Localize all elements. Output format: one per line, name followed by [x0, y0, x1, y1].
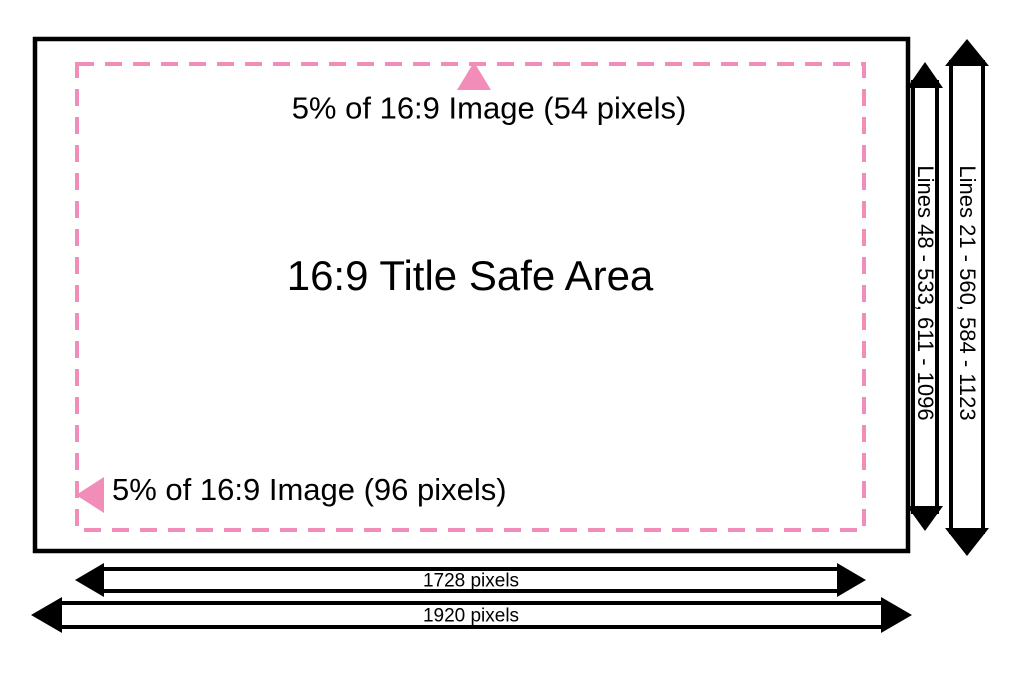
safe-width-label: 1728 pixels [423, 572, 519, 591]
image-width-label: 1920 pixels [423, 607, 519, 626]
arrowhead-right-icon [881, 597, 912, 633]
arrowhead-left-icon [75, 563, 104, 597]
arrowhead-down-icon [945, 528, 989, 556]
top-margin-triangle-icon [457, 62, 491, 90]
left-margin-triangle-icon [76, 477, 104, 513]
arrowhead-right-icon [837, 563, 866, 597]
diagram-title: 16:9 Title Safe Area [287, 255, 654, 297]
image-lines-label: Lines 21 - 560, 584 - 1123 [956, 165, 978, 420]
title-safe-area-diagram: 5% of 16:9 Image (54 pixels) 16:9 Title … [0, 0, 1016, 673]
left-margin-label: 5% of 16:9 Image (96 pixels) [112, 474, 507, 505]
arrowhead-up-icon [945, 39, 989, 66]
arrowhead-left-icon [31, 597, 62, 633]
safe-lines-label: Lines 48 - 533, 611 - 1096 [914, 165, 936, 420]
arrowhead-down-icon [907, 506, 943, 531]
arrowhead-up-icon [907, 62, 943, 88]
top-margin-label: 5% of 16:9 Image (54 pixels) [292, 93, 687, 124]
